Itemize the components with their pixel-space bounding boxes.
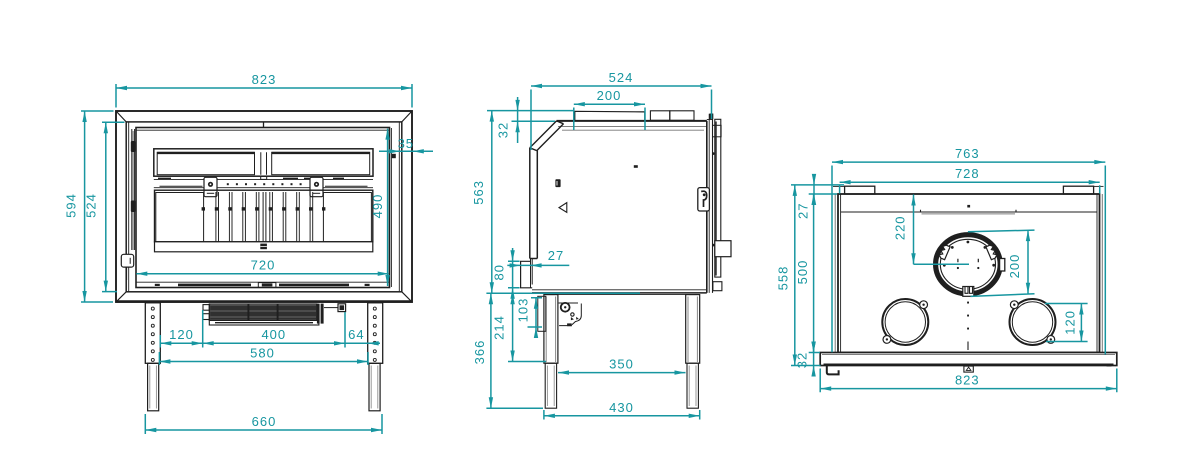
svg-text:400: 400 xyxy=(261,327,286,342)
svg-text:32: 32 xyxy=(496,122,511,138)
svg-text:490: 490 xyxy=(370,194,385,219)
svg-text:430: 430 xyxy=(609,400,634,415)
svg-text:32: 32 xyxy=(794,352,809,368)
svg-text:350: 350 xyxy=(609,357,634,372)
svg-text:823: 823 xyxy=(252,72,277,87)
svg-text:103: 103 xyxy=(516,298,531,323)
svg-text:120: 120 xyxy=(1063,310,1078,335)
svg-text:580: 580 xyxy=(250,346,275,361)
svg-text:563: 563 xyxy=(471,180,486,205)
svg-text:200: 200 xyxy=(597,88,622,103)
svg-text:27: 27 xyxy=(548,248,564,263)
svg-text:80: 80 xyxy=(492,264,507,280)
svg-text:214: 214 xyxy=(492,315,507,340)
svg-text:728: 728 xyxy=(955,166,980,181)
svg-text:500: 500 xyxy=(795,260,810,285)
svg-text:35: 35 xyxy=(398,136,414,151)
svg-text:660: 660 xyxy=(252,414,277,429)
svg-text:27: 27 xyxy=(796,203,811,219)
svg-text:594: 594 xyxy=(64,193,79,218)
svg-text:823: 823 xyxy=(955,373,980,388)
svg-text:120: 120 xyxy=(169,327,194,342)
svg-text:558: 558 xyxy=(775,266,790,291)
svg-text:220: 220 xyxy=(893,215,908,240)
svg-text:524: 524 xyxy=(609,70,634,85)
svg-text:763: 763 xyxy=(955,146,980,161)
svg-text:366: 366 xyxy=(472,340,487,365)
svg-text:200: 200 xyxy=(1007,254,1022,279)
svg-text:720: 720 xyxy=(251,258,276,273)
svg-text:524: 524 xyxy=(83,193,98,218)
svg-text:64: 64 xyxy=(348,327,364,342)
